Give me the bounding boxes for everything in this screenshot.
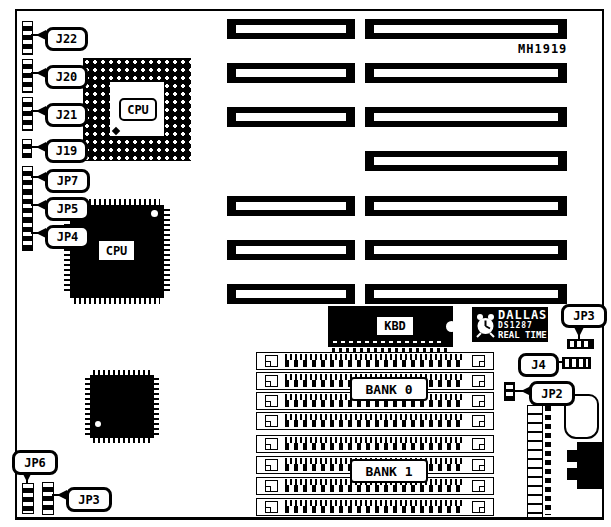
callout-jp3-bottom: JP3 (66, 487, 112, 512)
jumper-pins-icon (22, 222, 33, 251)
jumper-pins-icon (567, 339, 594, 349)
connector-pins-icon (545, 406, 551, 515)
callout-j19: J19 (45, 139, 88, 163)
jumper-label: JP6 (24, 457, 46, 469)
expansion-slot-segment (365, 240, 567, 260)
callout-j20: J20 (45, 65, 88, 89)
rtc-brand: DALLAS (498, 309, 547, 321)
cpu-label-text: CPU (127, 104, 149, 116)
simm-socket (256, 352, 494, 370)
jumper-label: JP7 (57, 175, 79, 187)
rtc-type: REAL TIME (498, 330, 547, 340)
bank-label-text: BANK 1 (366, 464, 413, 479)
jumper-label: J20 (56, 71, 78, 83)
din-connector-tab (567, 468, 577, 480)
keyboard-din-connector (577, 442, 603, 489)
jumper-pins-icon (22, 139, 32, 158)
chip-notch-icon (446, 321, 457, 332)
bank1-label: BANK 1 (350, 459, 428, 483)
expansion-slot-segment (365, 63, 567, 83)
callout-jp7: JP7 (45, 169, 90, 193)
jumper-label: J21 (56, 109, 78, 121)
jumper-label: J22 (56, 33, 78, 45)
jumper-label: J4 (531, 359, 545, 371)
jumper-label: J19 (56, 145, 78, 157)
expansion-slot-segment (365, 151, 567, 171)
kbd-label: KBD (376, 316, 414, 336)
expansion-slot-segment (227, 284, 355, 304)
rtc-chip: DALLAS DS1287 REAL TIME (472, 307, 548, 342)
callout-jp4: JP4 (45, 225, 90, 249)
simm-socket (256, 435, 494, 453)
jumper-pins-icon (22, 166, 33, 195)
kbd-label-text: KBD (384, 320, 406, 332)
pin1-dot-icon (151, 210, 158, 217)
jumper-pins-icon (562, 357, 591, 369)
din-connector-tab (567, 450, 577, 462)
expansion-slot-segment (365, 196, 567, 216)
callout-jp3-top: JP3 (561, 304, 607, 328)
jumper-pins-icon (22, 21, 33, 55)
expansion-slot-segment (227, 19, 355, 39)
callout-jp6: JP6 (12, 450, 58, 475)
motherboard-diagram: MH1919 J22 J20 J21 J19 JP7 JP5 JP4 CPU (0, 0, 611, 527)
callout-j21: J21 (45, 103, 88, 127)
simm-socket (256, 412, 494, 430)
jumper-label: JP3 (78, 494, 100, 506)
chip-pins-icon (164, 209, 170, 294)
expansion-slot-segment (227, 196, 355, 216)
expansion-slot-segment (365, 19, 567, 39)
jumper-label: JP4 (57, 231, 79, 243)
callout-jp5: JP5 (45, 197, 90, 221)
alarm-clock-icon (474, 311, 496, 339)
rtc-model: DS1287 (498, 321, 547, 330)
pga-cpu-socket: CPU (83, 58, 191, 161)
jumper-pins-icon (22, 483, 34, 514)
jumper-pins-icon (22, 194, 33, 223)
qfp-cpu-label: CPU (99, 241, 134, 260)
jumper-label: JP2 (541, 388, 563, 400)
callout-j22: J22 (45, 27, 88, 51)
board-part-number: MH1919 (518, 42, 567, 56)
expansion-slot-segment (227, 107, 355, 127)
qfp-support-chip (85, 370, 159, 443)
bank-label-text: BANK 0 (366, 382, 413, 397)
callout-jp2: JP2 (529, 381, 575, 406)
keyboard-bios-chip: KBD (328, 306, 453, 347)
expansion-slot-segment (227, 240, 355, 260)
callout-pointer-icon (574, 327, 584, 337)
power-connector (527, 405, 543, 518)
chip-pin-dashes-icon (333, 341, 443, 343)
callout-j4: J4 (518, 353, 559, 377)
jumper-pins-icon (22, 97, 33, 131)
rtc-text-block: DALLAS DS1287 REAL TIME (498, 309, 547, 340)
expansion-slot-segment (365, 107, 567, 127)
chip-pins-icon (74, 298, 160, 304)
pin1-dot-icon (95, 421, 101, 427)
jumper-pins-icon (504, 382, 515, 401)
expansion-slot-segment (365, 284, 567, 304)
simm-socket (256, 498, 494, 516)
jumper-label: JP5 (57, 203, 79, 215)
chip-body (90, 375, 154, 438)
jumper-pins-icon (22, 59, 33, 93)
jumper-pins-icon (42, 482, 54, 515)
jumper-label: JP3 (573, 310, 595, 322)
bank0-label: BANK 0 (350, 377, 428, 401)
cpu-label-text: CPU (106, 245, 128, 257)
expansion-slot-segment (227, 63, 355, 83)
pga-cpu-label: CPU (119, 98, 157, 121)
